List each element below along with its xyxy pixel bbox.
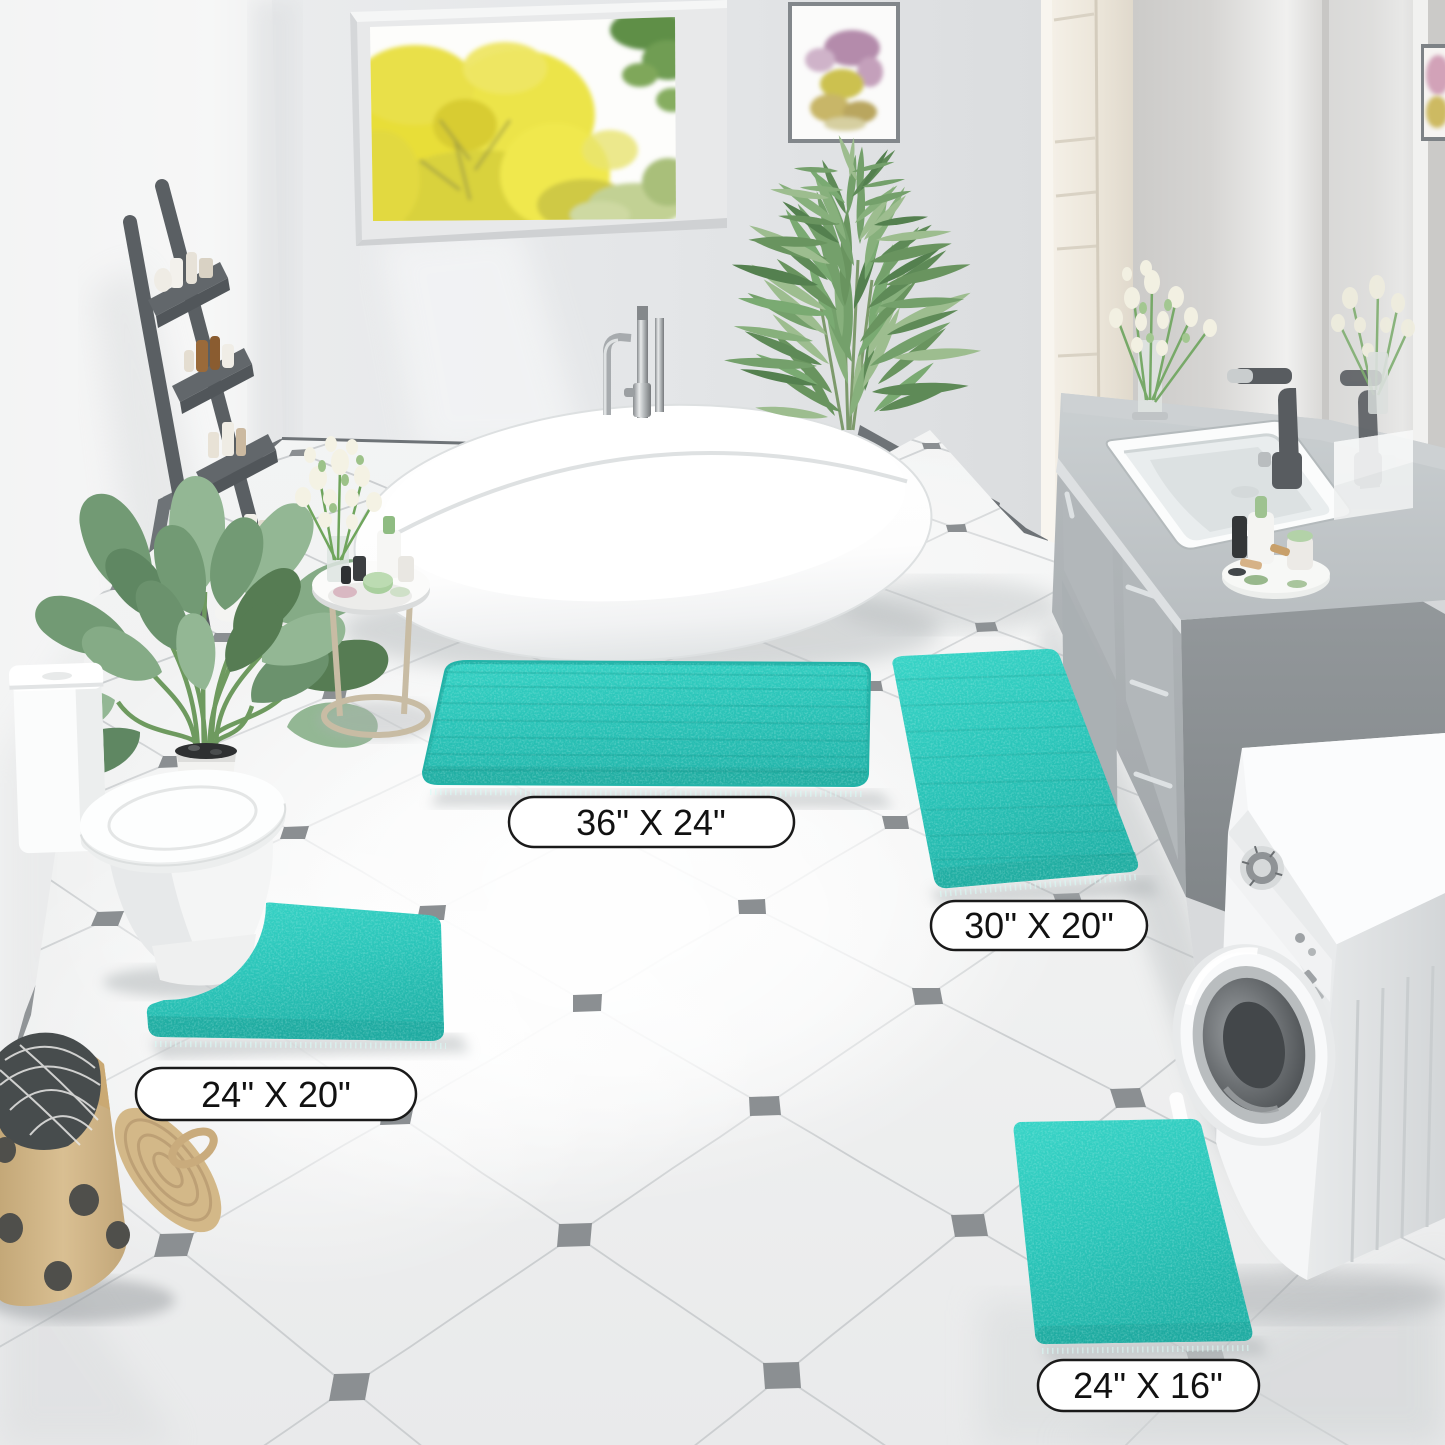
svg-text:24" X 16": 24" X 16": [1073, 1365, 1223, 1406]
svg-text:36" X 24": 36" X 24": [576, 802, 726, 843]
svg-text:30" X 20": 30" X 20": [964, 905, 1114, 946]
svg-text:24" X 20": 24" X 20": [201, 1074, 351, 1115]
